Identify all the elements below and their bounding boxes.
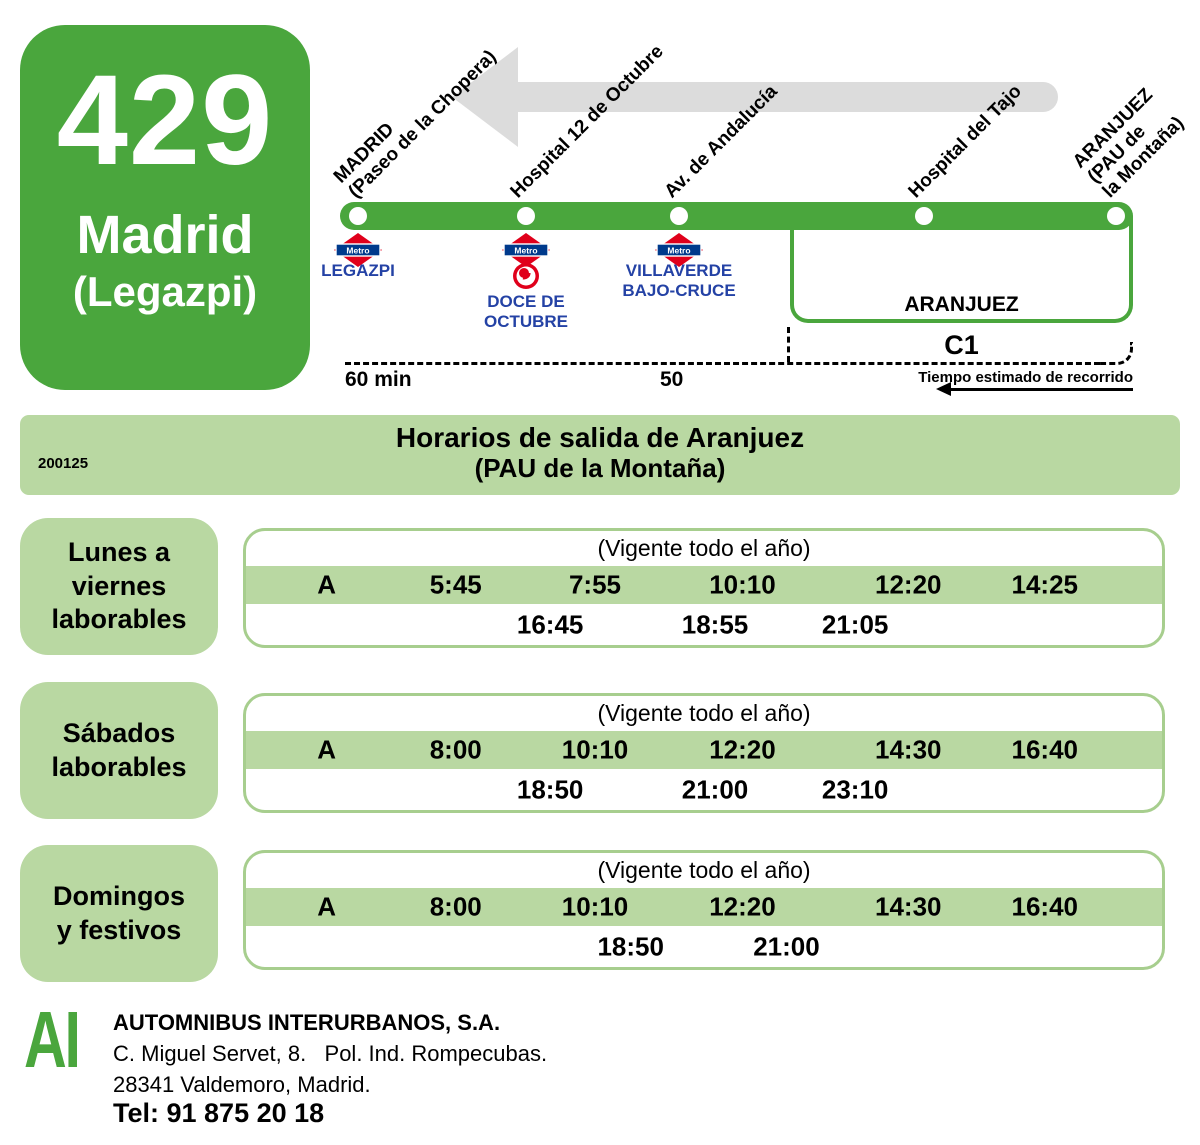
time-cell: 14:30: [875, 735, 942, 766]
times-row-2: 18:50 21:00 23:10: [246, 769, 1162, 810]
banner-title: Horarios de salida de Aranjuez (PAU de l…: [20, 422, 1180, 484]
route-origin-name: Madrid: [20, 207, 310, 264]
time-cell: 16:40: [1012, 892, 1079, 923]
day-label-line: Lunes a: [51, 536, 186, 570]
route-letter: A: [317, 892, 336, 923]
day-label-line: Sábados: [51, 717, 186, 751]
svg-text:Metro: Metro: [346, 246, 369, 256]
time-cell: 10:10: [709, 570, 776, 601]
company-logo: AI: [24, 1000, 79, 1080]
route-letter: A: [317, 735, 336, 766]
day-label-sundays: Domingos y festivos: [20, 845, 218, 982]
time-cell: 12:20: [875, 570, 942, 601]
route-letter: A: [317, 570, 336, 601]
stop-label-aranjuez: ARANJUEZ (PAU de la Montaña): [1070, 84, 1189, 203]
time-cell: 18:50: [597, 931, 664, 962]
svg-text:Metro: Metro: [667, 246, 690, 256]
stop-dot-av-andalucia: [670, 207, 688, 225]
stop-dot-madrid: [349, 207, 367, 225]
time-cell: 18:50: [517, 774, 584, 805]
time-cell: 14:30: [875, 892, 942, 923]
aranjuez-zone-label: ARANJUEZ: [790, 293, 1133, 317]
time-cell: 16:45: [517, 609, 584, 640]
validity-label: (Vigente todo el año): [246, 531, 1162, 566]
route-line: [340, 202, 1133, 230]
svg-text:Metro: Metro: [514, 246, 537, 256]
stop-label-hospital-12-octubre: Hospital 12 de Octubre: [507, 42, 668, 203]
banner-title-line2: (PAU de la Montaña): [20, 454, 1180, 484]
cercanias-c1-label: C1: [790, 330, 1133, 361]
day-label-line: viernes: [51, 570, 186, 604]
stop-dot-aranjuez: [1107, 207, 1125, 225]
travel-time-dashed-line: [345, 362, 1100, 365]
hospital-12-octubre-icon: [512, 262, 540, 290]
time-cell: 18:55: [682, 609, 749, 640]
station-name-doce-de-octubre: DOCE DE OCTUBRE: [454, 292, 598, 332]
station-name-legazpi: LEGAZPI: [298, 261, 418, 281]
times-row-2: 16:45 18:55 21:05: [246, 604, 1162, 645]
station-name-villaverde-bajo-cruce: VILLAVERDE BAJO-CRUCE: [604, 261, 754, 301]
time-cell: 14:25: [1012, 570, 1079, 601]
travel-time-50: 50: [660, 368, 683, 392]
time-cell: 12:20: [709, 892, 776, 923]
times-row-1: A 8:00 10:10 12:20 14:30 16:40: [246, 731, 1162, 769]
times-row-1: A 5:45 7:55 10:10 12:20 14:25: [246, 566, 1162, 604]
estimated-time-arrow-line: [948, 388, 1133, 391]
station-name-line: OCTUBRE: [454, 312, 598, 332]
company-phone: Tel: 91 875 20 18: [113, 1098, 324, 1129]
time-cell: 21:00: [753, 931, 820, 962]
station-name-line: LEGAZPI: [298, 261, 418, 281]
schedule-table-sundays: (Vigente todo el año) A 8:00 10:10 12:20…: [243, 850, 1165, 970]
stop-label-line: Hospital 12 de Octubre: [507, 42, 668, 203]
time-cell: 10:10: [562, 892, 629, 923]
time-cell: 12:20: [709, 735, 776, 766]
schedule-table-weekdays: (Vigente todo el año) A 5:45 7:55 10:10 …: [243, 528, 1165, 648]
time-cell: 8:00: [430, 735, 482, 766]
day-label-line: laborables: [51, 603, 186, 637]
route-card: 429 Madrid (Legazpi): [20, 25, 310, 390]
station-name-line: DOCE DE: [454, 292, 598, 312]
day-label-weekdays: Lunes a viernes laborables: [20, 518, 218, 655]
travel-time-dashed-divider: [787, 327, 790, 362]
stop-dot-hospital-tajo: [915, 207, 933, 225]
day-label-line: laborables: [51, 751, 186, 785]
estimated-time-arrow-head-icon: [936, 382, 951, 396]
departures-banner: 200125 Horarios de salida de Aranjuez (P…: [20, 415, 1180, 495]
times-row-1: A 8:00 10:10 12:20 14:30 16:40: [246, 888, 1162, 926]
travel-time-dashed-corner: [1100, 342, 1133, 365]
company-address-line2: 28341 Valdemoro, Madrid.: [113, 1072, 371, 1098]
day-label-saturdays: Sábados laborables: [20, 682, 218, 819]
time-cell: 8:00: [430, 892, 482, 923]
time-cell: 10:10: [562, 735, 629, 766]
time-cell: 5:45: [430, 570, 482, 601]
stop-dot-hospital-12-octubre: [517, 207, 535, 225]
time-cell: 21:05: [822, 609, 889, 640]
time-cell: 23:10: [822, 774, 889, 805]
day-label-line: Domingos: [53, 880, 185, 914]
time-cell: 16:40: [1012, 735, 1079, 766]
day-label-line: y festivos: [53, 914, 185, 948]
bus-timetable-page: 429 Madrid (Legazpi) MADRID (Paseo de la…: [0, 0, 1200, 1145]
time-cell: 21:00: [682, 774, 749, 805]
route-number: 429: [20, 57, 310, 185]
validity-label: (Vigente todo el año): [246, 853, 1162, 888]
validity-label: (Vigente todo el año): [246, 696, 1162, 731]
company-address-line1: C. Miguel Servet, 8. Pol. Ind. Rompecuba…: [113, 1041, 547, 1067]
travel-time-60min: 60 min: [345, 368, 412, 392]
station-name-line: BAJO-CRUCE: [604, 281, 754, 301]
banner-title-line1: Horarios de salida de Aranjuez: [20, 422, 1180, 454]
times-row-2: 18:50 21:00: [246, 926, 1162, 967]
schedule-table-saturdays: (Vigente todo el año) A 8:00 10:10 12:20…: [243, 693, 1165, 813]
station-name-line: VILLAVERDE: [604, 261, 754, 281]
time-cell: 7:55: [569, 570, 621, 601]
route-origin-subname: (Legazpi): [20, 268, 310, 316]
company-name: AUTOMNIBUS INTERURBANOS, S.A.: [113, 1010, 500, 1036]
